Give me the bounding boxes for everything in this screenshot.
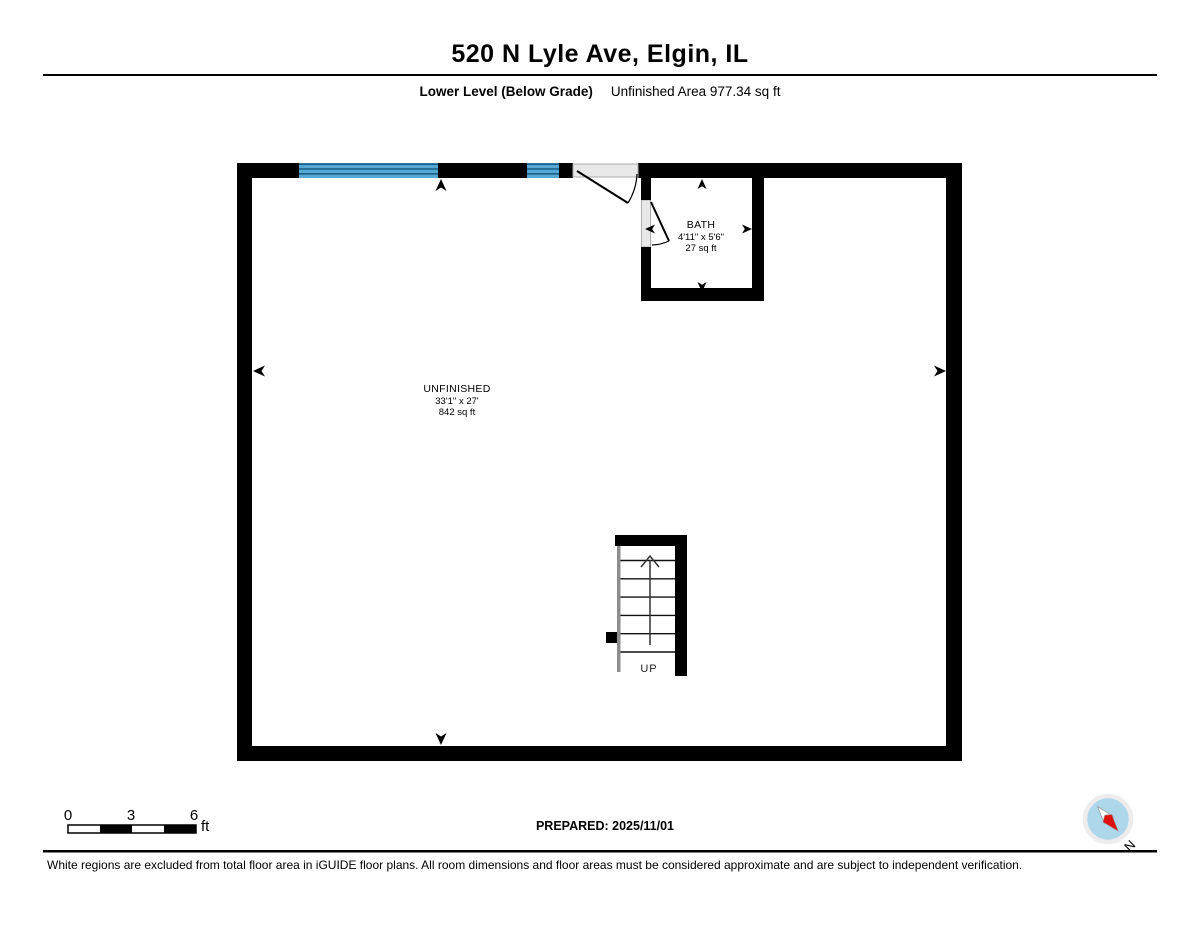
wall-top-seg1 <box>237 163 299 178</box>
dim-arrow-up-icon <box>436 179 447 191</box>
room-dimensions: 4'11" x 5'6" <box>611 232 791 243</box>
stairs-up-arrow-icon <box>641 556 659 645</box>
stair-treads <box>621 561 676 653</box>
dim-arrow-up-icon <box>698 179 707 189</box>
room-area: 27 sq ft <box>611 243 791 254</box>
footer-divider <box>43 850 1157 853</box>
dim-arrow-down-icon <box>436 733 447 745</box>
room-area: 842 sq ft <box>367 407 547 418</box>
room-label-bath: BATH 4'11" x 5'6" 27 sq ft <box>611 219 791 254</box>
wall-top-seg3 <box>559 163 573 178</box>
wall-right <box>946 163 962 761</box>
dimension-arrows-unfinished <box>253 179 946 745</box>
wall-top-seg2 <box>438 163 527 178</box>
wall-left <box>237 163 252 761</box>
header-divider <box>43 74 1157 76</box>
scale-tick-0: 0 <box>56 807 80 824</box>
scale-unit-label: ft <box>201 818 209 835</box>
staircase <box>606 535 687 676</box>
stairs-up-label: UP <box>629 663 669 675</box>
room-name: UNFINISHED <box>367 383 547 396</box>
scale-bar <box>68 825 196 833</box>
stair-railing <box>617 546 621 672</box>
wall-stub <box>606 632 617 643</box>
dim-arrow-left-icon <box>253 366 265 377</box>
floor-plan-canvas <box>0 0 1200 927</box>
room-name: BATH <box>611 219 791 232</box>
disclaimer-text: White regions are excluded from total fl… <box>47 858 1157 872</box>
wall-bottom <box>237 746 962 761</box>
exterior-walls <box>237 163 962 761</box>
wall-top-seg4 <box>638 163 962 178</box>
dim-arrow-right-icon <box>934 366 946 377</box>
window-icon-2 <box>527 163 559 178</box>
room-label-unfinished: UNFINISHED 33'1" x 27' 842 sq ft <box>367 383 547 418</box>
room-dimensions: 33'1" x 27' <box>367 396 547 407</box>
window-icon-1 <box>299 163 438 178</box>
prepared-date: PREPARED: 2025/11/01 <box>495 819 715 833</box>
scale-tick-3: 3 <box>119 807 143 824</box>
